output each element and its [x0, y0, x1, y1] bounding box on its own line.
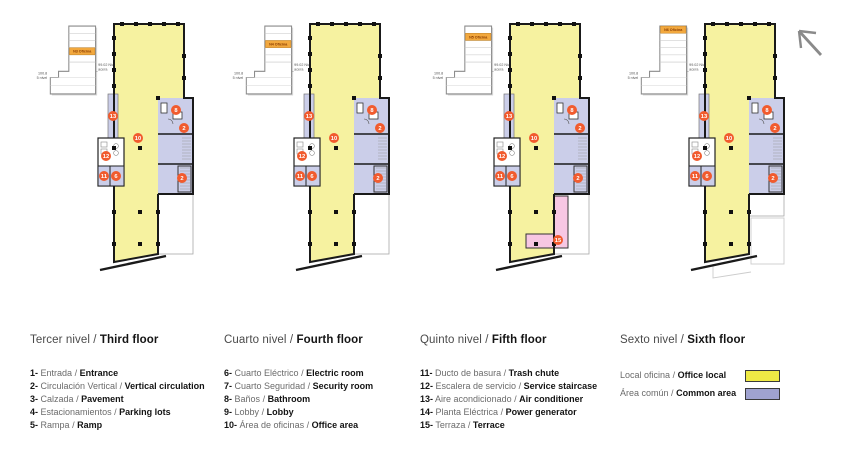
plan-marker-8: 8: [762, 105, 772, 115]
svg-text:12: 12: [299, 154, 305, 160]
common-area-color-swatch: [745, 388, 780, 400]
floor-plan-drawing: 131211610822: [687, 16, 787, 300]
legend-title: Sexto nivel / Sixth floor: [620, 334, 745, 346]
floor-panel-sixth: N6 Oficina100.85 nivel99.02 Nivelacera 1…: [635, 12, 805, 317]
svg-text:2: 2: [180, 176, 183, 182]
plan-marker-12: 12: [297, 151, 307, 161]
svg-text:12: 12: [499, 154, 505, 160]
plan-marker-13: 13: [699, 111, 709, 121]
plan-marker-13: 13: [108, 111, 118, 121]
plan-marker-11: 11: [295, 171, 305, 181]
legend-item: 13- Aire acondicionado / Air conditioner: [420, 393, 597, 406]
svg-text:N4 Oficina: N4 Oficina: [269, 42, 288, 46]
legend-item: 14- Planta Eléctrica / Power generator: [420, 406, 597, 419]
legend-column-third-floor: Tercer nivel / Third floor 1- Entrada / …: [30, 334, 205, 432]
svg-text:2: 2: [576, 176, 579, 182]
plan-marker-15: 15: [553, 235, 563, 245]
plan-marker-11: 11: [99, 171, 109, 181]
plan-marker-2: 2: [575, 123, 585, 133]
legend-item: 5- Rampa / Ramp: [30, 419, 205, 432]
legend-item: 6- Cuarto Eléctrico / Electric room: [224, 367, 373, 380]
floor-panel-fifth: N5 Oficina100.85 nivel99.02 Nivelacera 1…: [440, 12, 610, 317]
svg-text:11: 11: [297, 174, 304, 180]
legend-title: Tercer nivel / Third floor: [30, 334, 205, 346]
svg-text:5 nivel: 5 nivel: [233, 76, 244, 80]
legend-column-fourth-floor: Cuarto nivel / Fourth floor 6- Cuarto El…: [224, 334, 373, 432]
plan-marker-10: 10: [133, 133, 143, 143]
svg-text:10: 10: [531, 136, 537, 142]
legend-item: 10- Área de oficinas / Office area: [224, 419, 373, 432]
plan-marker-2: 2: [770, 123, 780, 133]
svg-text:10: 10: [135, 136, 141, 142]
plan-marker-12: 12: [497, 151, 507, 161]
plan-marker-2: 2: [179, 123, 189, 133]
svg-text:11: 11: [497, 174, 504, 180]
svg-text:100.8: 100.8: [38, 71, 47, 75]
legend-item: 7- Cuarto Seguridad / Security room: [224, 380, 373, 393]
legend-column-fifth-floor: Quinto nivel / Fifth floor 11- Ducto de …: [420, 334, 597, 432]
svg-text:2: 2: [773, 126, 776, 132]
floor-plan-drawing: 13121161082215: [492, 16, 592, 300]
legend-swatch-row-office-local: Local oficina / Office local: [620, 369, 745, 387]
plan-marker-2: 2: [373, 173, 383, 183]
plan-marker-10: 10: [724, 133, 734, 143]
floor-plans-sheet: { "ui": { "separator": "/" }, "colors": …: [0, 0, 844, 450]
floor-panel-third: N3 Oficina100.85 nivel99.02 Nivelacera 1…: [44, 12, 214, 317]
svg-text:10: 10: [331, 136, 337, 142]
floor-plan-drawing: 131211610822: [96, 16, 196, 300]
plan-marker-13: 13: [304, 111, 314, 121]
legend-item: 11- Ducto de basura / Trash chute: [420, 367, 597, 380]
plan-marker-2: 2: [177, 173, 187, 183]
legend-item: 4- Estacionamientos / Parking lots: [30, 406, 205, 419]
svg-text:13: 13: [306, 114, 313, 120]
svg-text:2: 2: [376, 176, 379, 182]
legend-item: 1- Entrada / Entrance: [30, 367, 205, 380]
plan-marker-6: 6: [111, 171, 121, 181]
svg-text:100.8: 100.8: [629, 71, 638, 75]
legend-item: 12- Escalera de servicio / Service stair…: [420, 380, 597, 393]
legend-item: 9- Lobby / Lobby: [224, 406, 373, 419]
svg-text:12: 12: [694, 154, 700, 160]
north-arrow-icon: [790, 22, 828, 60]
svg-text:5 nivel: 5 nivel: [628, 76, 639, 80]
svg-text:13: 13: [506, 114, 513, 120]
plan-marker-13: 13: [504, 111, 514, 121]
svg-text:5 nivel: 5 nivel: [433, 76, 444, 80]
svg-text:11: 11: [101, 174, 108, 180]
plan-marker-6: 6: [702, 171, 712, 181]
floor-plan-drawing: 131211610822: [292, 16, 392, 300]
svg-text:100.8: 100.8: [434, 71, 443, 75]
svg-text:100.8: 100.8: [234, 71, 243, 75]
svg-text:12: 12: [103, 154, 109, 160]
svg-text:N6 Oficina: N6 Oficina: [664, 28, 683, 32]
floor-panel-fourth: N4 Oficina100.85 nivel99.02 Nivelacera 1…: [240, 12, 410, 317]
plan-marker-2: 2: [573, 173, 583, 183]
plan-marker-12: 12: [692, 151, 702, 161]
legend-item: 8- Baños / Bathroom: [224, 393, 373, 406]
legend-swatch-row-common-area: Área común / Common area: [620, 387, 745, 405]
plan-marker-6: 6: [307, 171, 317, 181]
plan-marker-2: 2: [768, 173, 778, 183]
plan-marker-10: 10: [529, 133, 539, 143]
plan-marker-8: 8: [567, 105, 577, 115]
plan-marker-12: 12: [101, 151, 111, 161]
svg-text:5 nivel: 5 nivel: [37, 76, 48, 80]
legend-title: Cuarto nivel / Fourth floor: [224, 334, 373, 346]
plan-marker-2: 2: [375, 123, 385, 133]
svg-text:2: 2: [182, 126, 185, 132]
legend-item: 2- Circulación Vertical / Vertical circu…: [30, 380, 205, 393]
legend: Tercer nivel / Third floor 1- Entrada / …: [0, 334, 844, 450]
svg-text:N5 Oficina: N5 Oficina: [469, 35, 488, 39]
plan-marker-11: 11: [690, 171, 700, 181]
plan-marker-10: 10: [329, 133, 339, 143]
svg-text:2: 2: [378, 126, 381, 132]
office-local-color-swatch: [745, 370, 780, 382]
plan-marker-8: 8: [367, 105, 377, 115]
svg-text:11: 11: [692, 174, 699, 180]
plan-marker-11: 11: [495, 171, 505, 181]
legend-item: 3- Calzada / Pavement: [30, 393, 205, 406]
svg-text:2: 2: [771, 176, 774, 182]
legend-item: 15- Terraza / Terrace: [420, 419, 597, 432]
svg-text:N3 Oficina: N3 Oficina: [73, 50, 92, 54]
legend-title: Quinto nivel / Fifth floor: [420, 334, 597, 346]
svg-text:13: 13: [701, 114, 708, 120]
plan-marker-8: 8: [171, 105, 181, 115]
svg-text:2: 2: [578, 126, 581, 132]
svg-text:13: 13: [110, 114, 117, 120]
legend-column-sixth-floor: Sexto nivel / Sixth floor Local oficina …: [620, 334, 745, 405]
plan-marker-6: 6: [507, 171, 517, 181]
svg-text:10: 10: [726, 136, 732, 142]
svg-text:15: 15: [555, 238, 562, 244]
